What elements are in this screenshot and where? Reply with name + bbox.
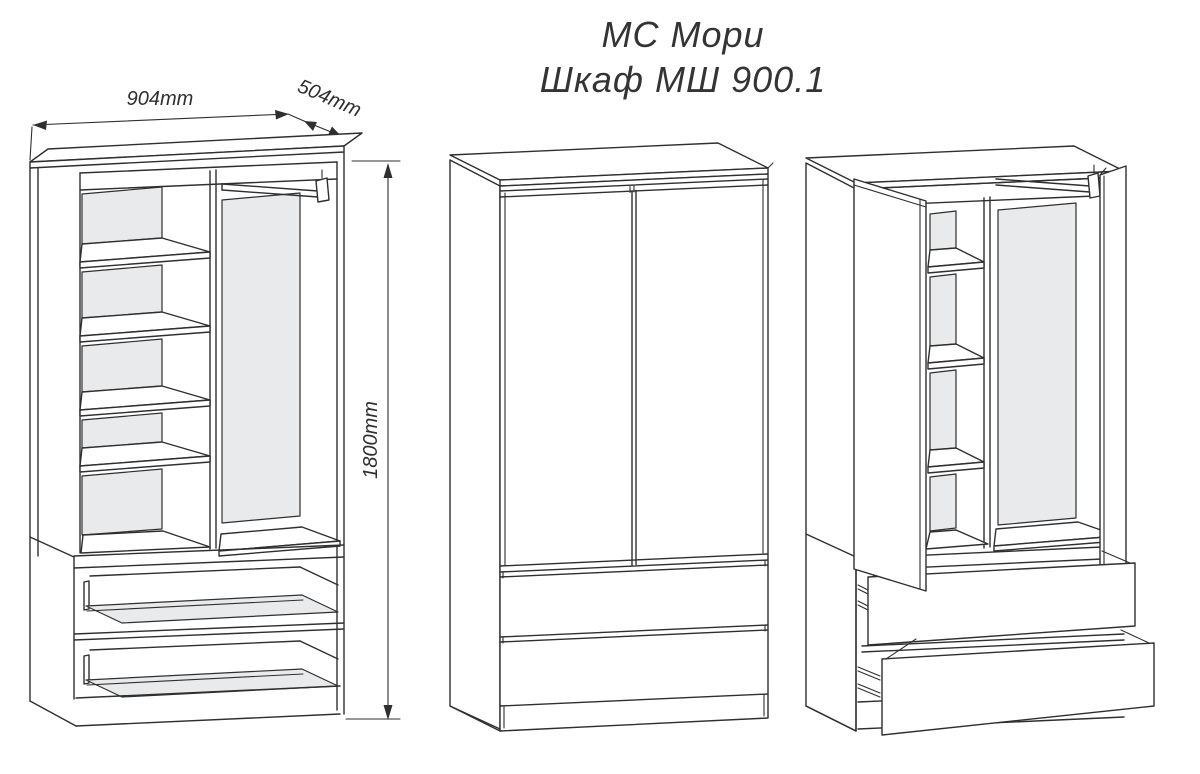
open-view-drawer-module: [74, 545, 344, 726]
dim-height-arrow: 1800mm: [346, 161, 400, 720]
left-door-open: [854, 179, 926, 591]
title-model: Шкаф МШ 900.1: [540, 59, 826, 100]
closed-view-left-side: [450, 160, 500, 731]
dim-height-label: 1800mm: [360, 401, 382, 479]
open-view-back-panels: [82, 187, 300, 535]
title-series: МС Мори: [601, 14, 764, 55]
dim-depth-label: 504mm: [294, 75, 364, 121]
open-doors-left-side: [806, 163, 856, 731]
drawing-title: МС Мори Шкаф МШ 900.1: [540, 14, 826, 100]
view-doors-open: [806, 146, 1154, 735]
dim-width-label: 904mm: [127, 88, 194, 110]
right-door-ajar: [1100, 166, 1126, 577]
view-closed-front: [450, 143, 773, 731]
view-open-carcass: 904mm 504mm 1800mm: [30, 75, 400, 726]
wardrobe-drawing-canvas: МС Мори Шкаф МШ 900.1 904mm 504mm 1800mm: [0, 0, 1200, 774]
technical-drawing-page: МС Мори Шкаф МШ 900.1 904mm 504mm 1800mm: [0, 0, 1200, 774]
